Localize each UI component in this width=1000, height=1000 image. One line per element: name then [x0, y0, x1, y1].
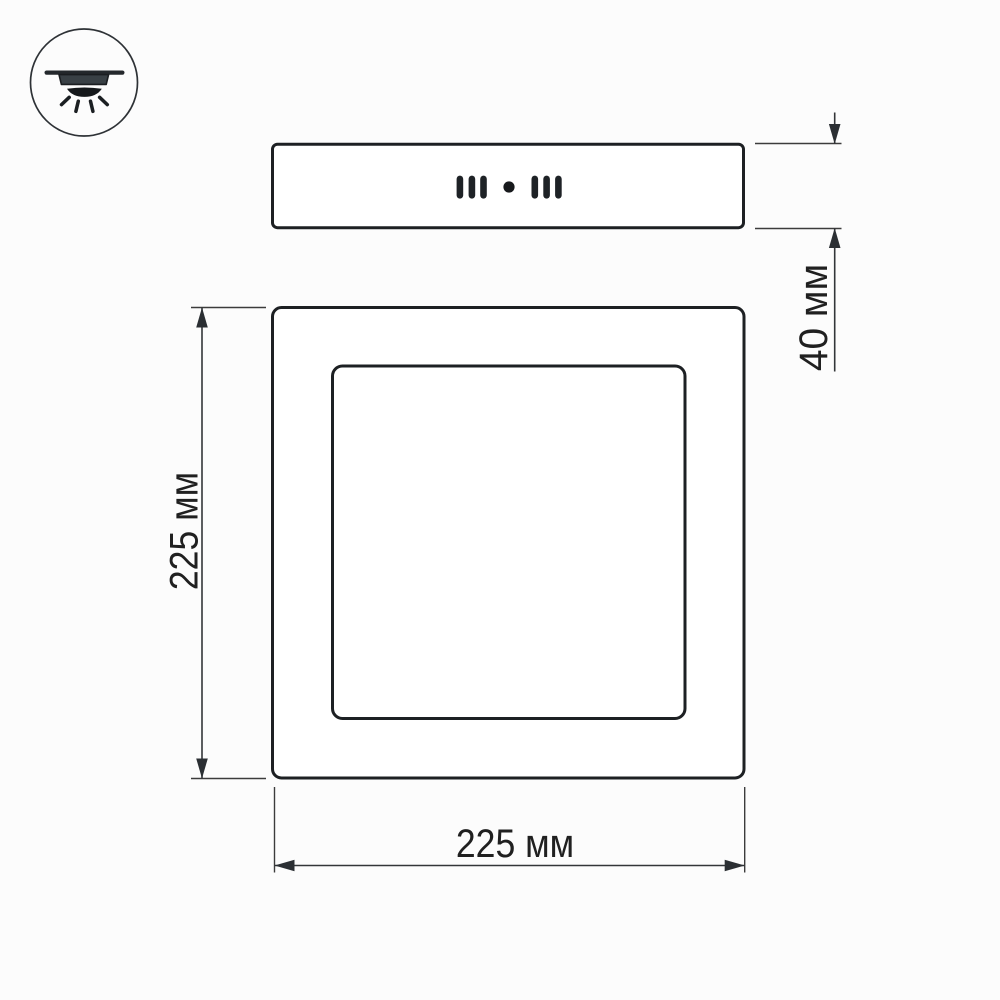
- svg-text:40 мм: 40 мм: [791, 264, 836, 371]
- svg-text:225 мм: 225 мм: [456, 822, 574, 866]
- svg-text:225 мм: 225 мм: [163, 472, 207, 590]
